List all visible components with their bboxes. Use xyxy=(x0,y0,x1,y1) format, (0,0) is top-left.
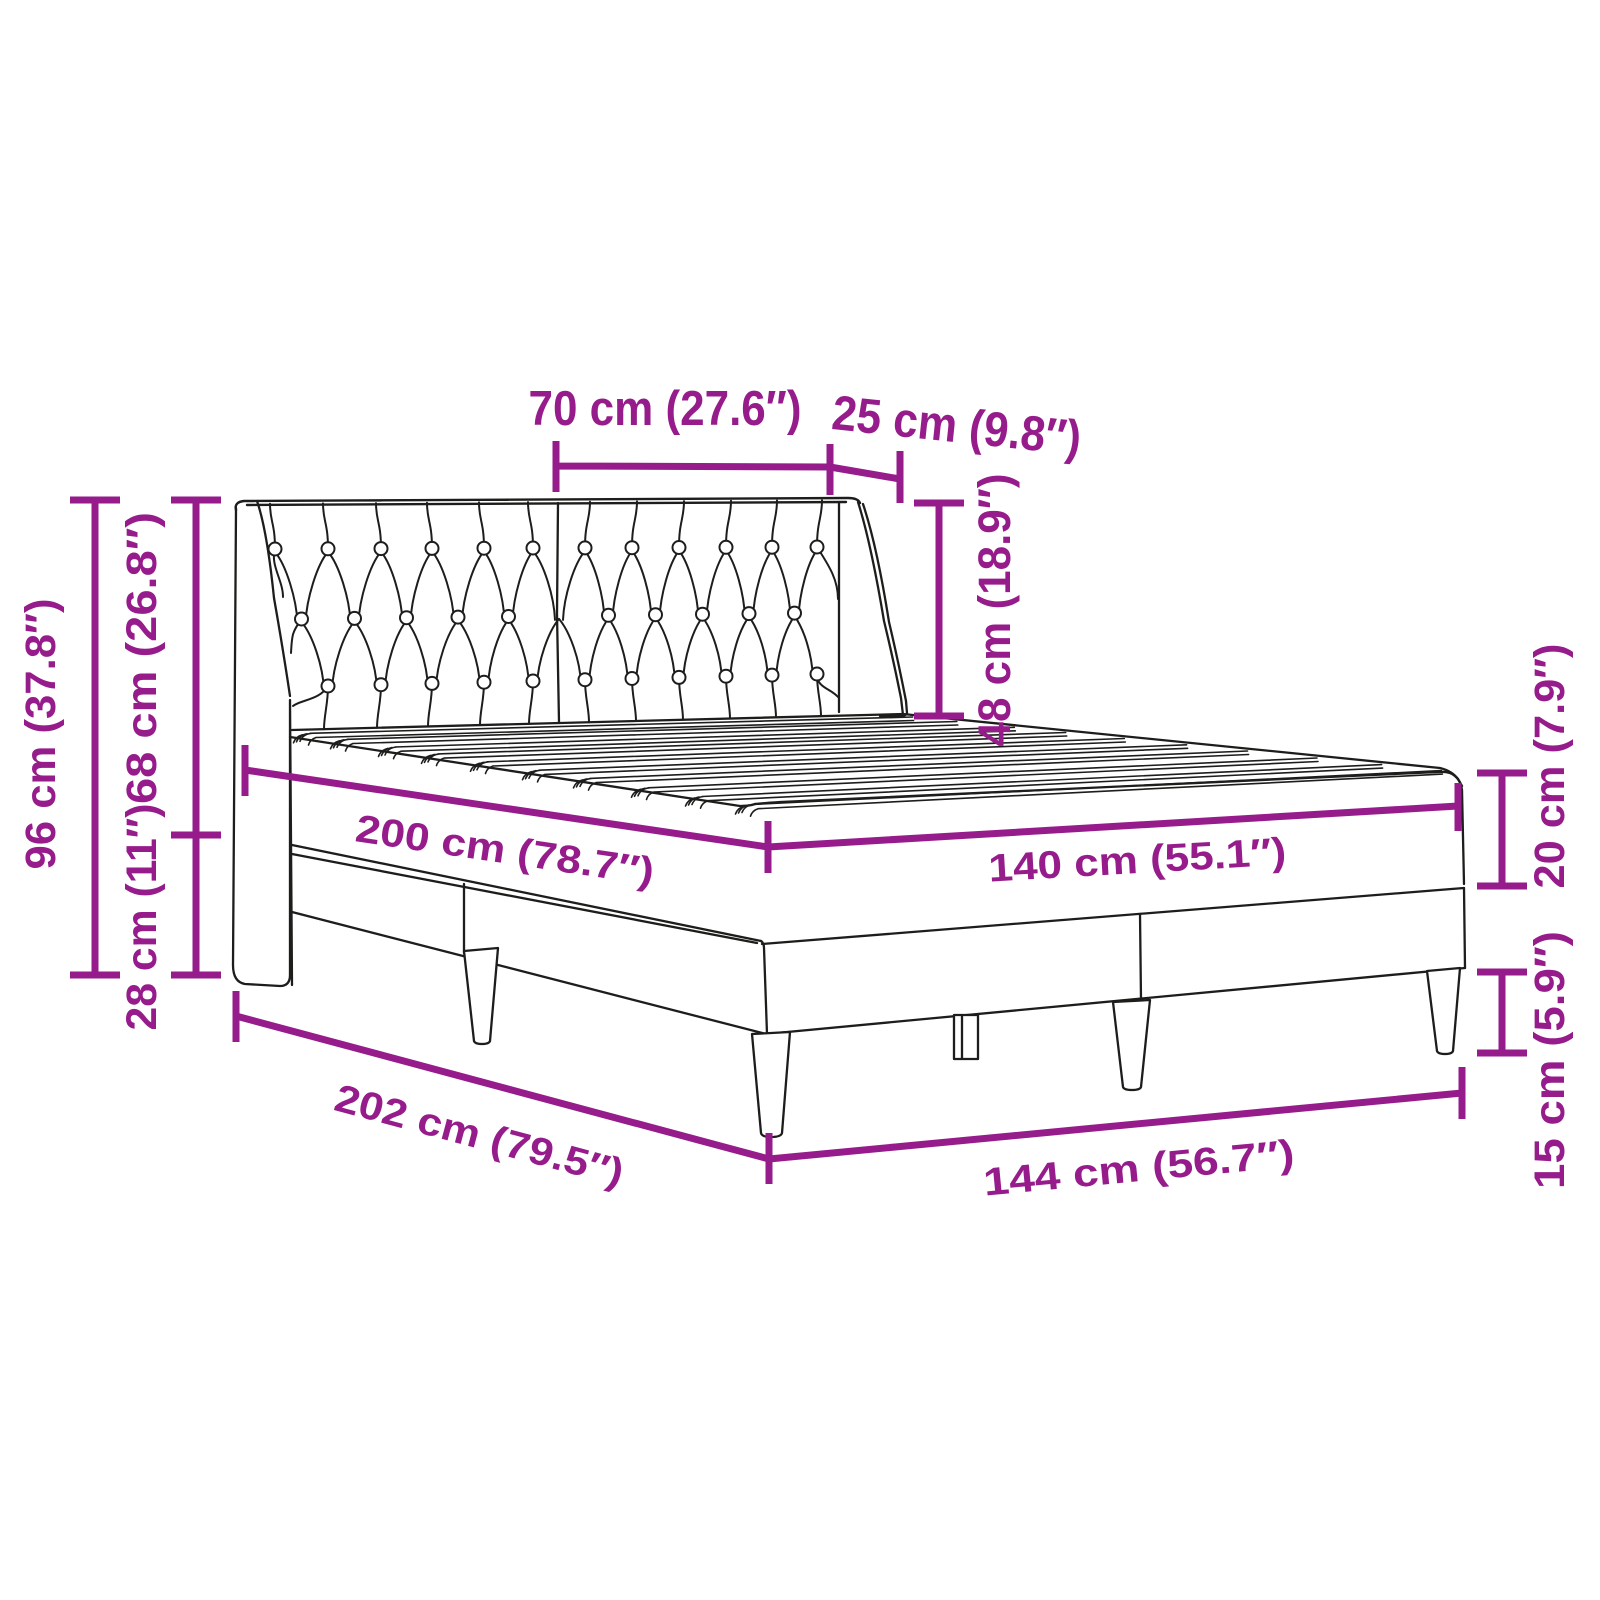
svg-text:28 cm (11″): 28 cm (11″) xyxy=(118,804,166,1031)
svg-text:15 cm (5.9″): 15 cm (5.9″) xyxy=(1526,931,1574,1189)
svg-text:20 cm (7.9″): 20 cm (7.9″) xyxy=(1526,644,1574,889)
svg-text:96 cm (37.8″): 96 cm (37.8″) xyxy=(17,599,65,870)
svg-text:48 cm (18.9″): 48 cm (18.9″) xyxy=(969,474,1020,747)
svg-text:70 cm (27.6″): 70 cm (27.6″) xyxy=(529,382,802,436)
svg-text:68 cm (26.8″): 68 cm (26.8″) xyxy=(118,512,166,804)
